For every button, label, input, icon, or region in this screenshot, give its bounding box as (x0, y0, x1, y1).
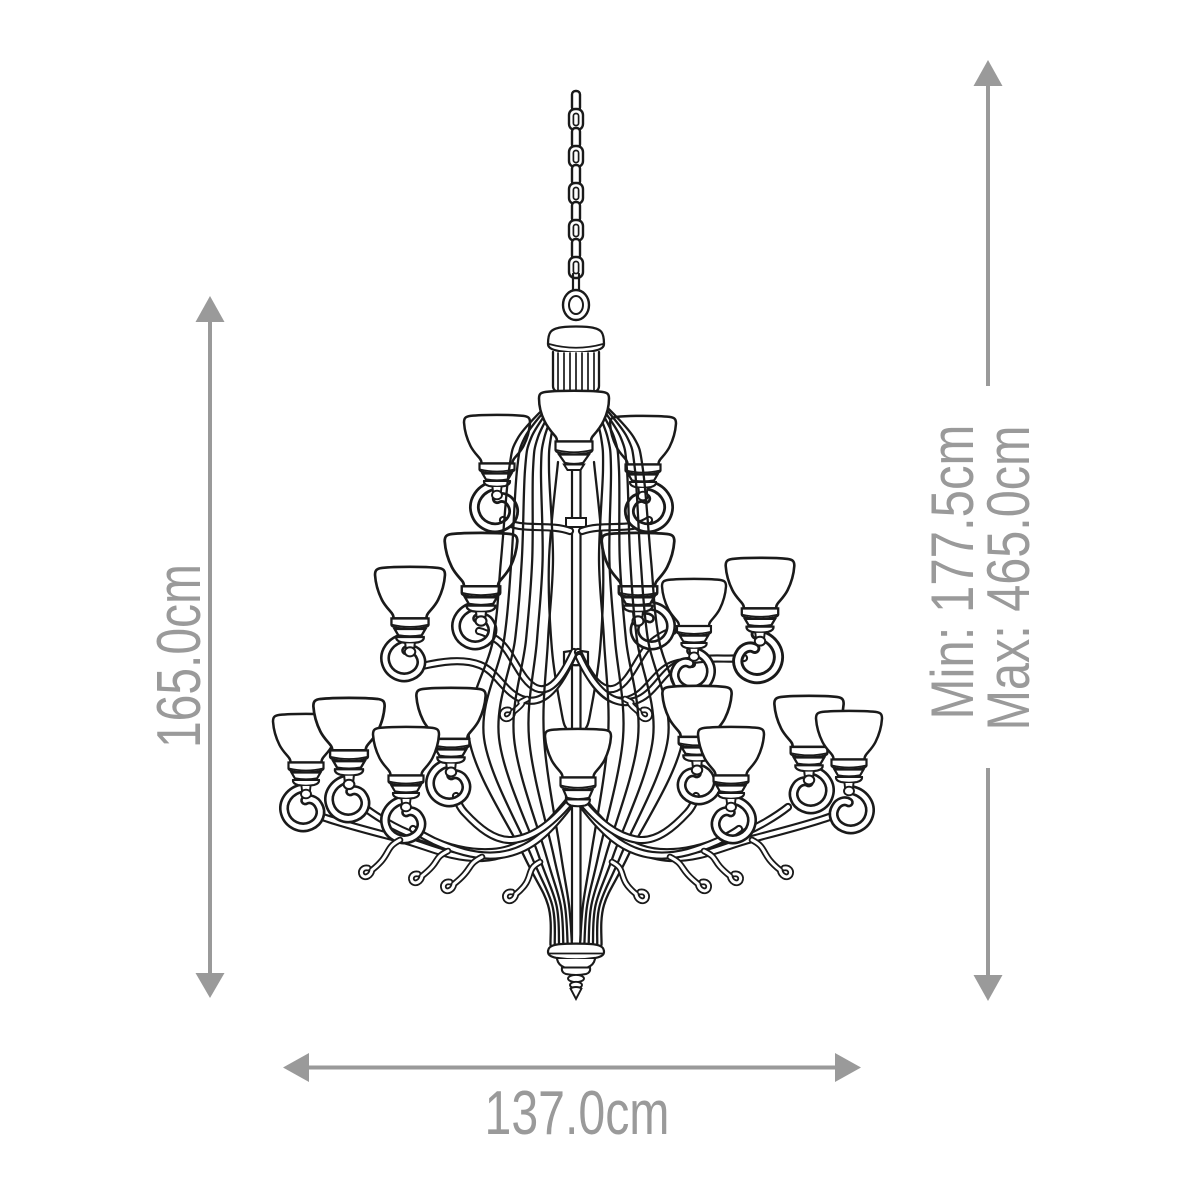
svg-text:137.0cm: 137.0cm (485, 1079, 670, 1148)
svg-text:165.0cm: 165.0cm (145, 564, 214, 748)
svg-text:Max: 465.0cm: Max: 465.0cm (975, 426, 1042, 731)
